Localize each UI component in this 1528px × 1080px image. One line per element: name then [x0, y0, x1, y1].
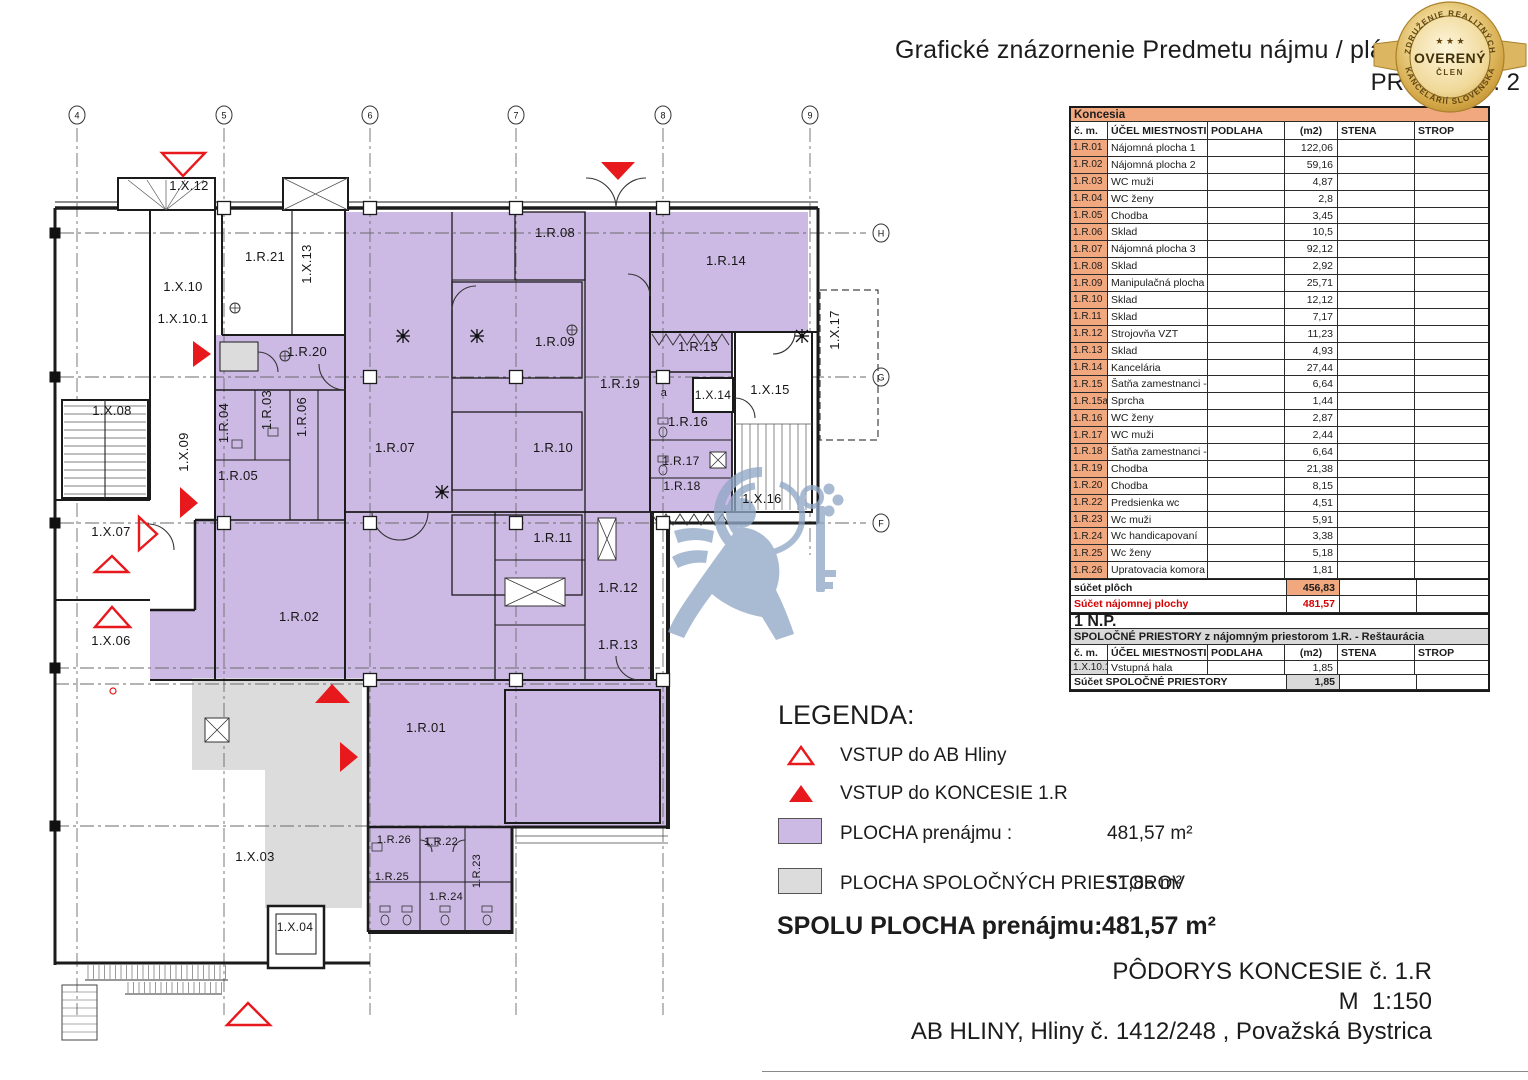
legend-total-label: SPOLU PLOCHA prenájmu: — [777, 912, 1103, 941]
cell: Sprcha — [1108, 393, 1208, 410]
cell — [1415, 393, 1488, 410]
cell — [1338, 512, 1415, 529]
table-row: 1.R.19Chodba21,38 — [1071, 461, 1488, 478]
grid-label: 9 — [807, 111, 812, 121]
cell — [1338, 410, 1415, 427]
cell — [1415, 512, 1488, 529]
cell: 1.R.12 — [1071, 326, 1108, 343]
tenant-area-fill — [368, 680, 668, 827]
cell: Chodba — [1108, 461, 1208, 478]
cell: Chodba — [1108, 208, 1208, 225]
cell: (m2) — [1285, 645, 1338, 661]
cell — [1338, 376, 1415, 393]
table-floor-row: 1 N.P. — [1071, 613, 1488, 629]
legend-item-label: VSTUP do KONCESIE 1.R — [840, 783, 1068, 805]
column-marker — [657, 674, 670, 687]
room-label-1.X.04: 1.X.04 — [277, 920, 314, 934]
cell — [1338, 174, 1415, 191]
cell: PODLAHA — [1208, 122, 1285, 140]
room-label-1.X.16: 1.X.16 — [742, 491, 781, 506]
cell: STENA — [1338, 645, 1415, 661]
cell: 1.R.15 — [1071, 376, 1108, 393]
entrance-triangle-icon — [193, 341, 211, 367]
cell: 21,38 — [1285, 461, 1338, 478]
cell — [1415, 410, 1488, 427]
tenant-area-fill — [345, 212, 650, 512]
room-label-1.R.11: 1.R.11 — [533, 530, 572, 545]
cell: 1.R.18 — [1071, 444, 1108, 461]
room-label-1.R.18: 1.R.18 — [663, 479, 700, 493]
cell — [1415, 140, 1488, 157]
cell — [1208, 444, 1285, 461]
cell — [1208, 562, 1285, 579]
cell — [1415, 545, 1488, 562]
room-label-1.R.15: 1.R.15 — [678, 339, 718, 354]
page-title: Grafické znázornenie Predmetu nájmu / pl… — [895, 36, 1398, 65]
cell: 1.R.13 — [1071, 343, 1108, 360]
cell: 10,5 — [1285, 224, 1338, 241]
room-label-a: a — [661, 387, 668, 399]
cell: 1,81 — [1285, 562, 1338, 579]
cell: (m2) — [1285, 122, 1338, 140]
entrance-triangle-icon — [601, 162, 635, 180]
room-label-1.X.15: 1.X.15 — [750, 382, 789, 397]
legend-item-value: 51,85 m² — [1107, 873, 1182, 895]
cell — [1208, 258, 1285, 275]
table-row: 1.R.23Wc muži5,91 — [1071, 512, 1488, 529]
column-marker — [50, 518, 61, 529]
ceiling-symbol-icon — [435, 485, 449, 499]
room-label-1.X.06: 1.X.06 — [91, 633, 130, 648]
cell — [1338, 661, 1415, 675]
cell: Strojovňa VZT — [1108, 326, 1208, 343]
table-row: 1.R.20Chodba8,15 — [1071, 478, 1488, 495]
cell — [1338, 562, 1415, 579]
cell — [1415, 191, 1488, 208]
table-row: 1.R.06Sklad10,5 — [1071, 224, 1488, 241]
cell — [1338, 292, 1415, 309]
cell — [1338, 461, 1415, 478]
cell: 2,92 — [1285, 258, 1338, 275]
cell — [1338, 309, 1415, 326]
cell — [1338, 343, 1415, 360]
column-marker — [510, 371, 523, 384]
room-label-1.X.13: 1.X.13 — [299, 244, 314, 283]
cell — [1338, 224, 1415, 241]
room-label-1.X.10: 1.X.10 — [163, 279, 202, 294]
room-label-1.R.07: 1.R.07 — [375, 440, 415, 455]
cell — [1415, 208, 1488, 225]
cell — [1415, 661, 1488, 675]
cell — [1208, 275, 1285, 292]
grid-label: 8 — [660, 111, 665, 121]
column-marker — [50, 821, 61, 832]
cell — [1417, 596, 1488, 613]
badge-stars: ★ ★ ★ — [1435, 36, 1464, 46]
column-marker — [50, 372, 61, 383]
grid-label: 6 — [367, 111, 372, 121]
sum-label-cell: súčet plôch — [1071, 580, 1287, 596]
cell: PODLAHA — [1208, 645, 1285, 661]
cell — [1208, 241, 1285, 258]
cell — [1208, 292, 1285, 309]
entrance-triangle-icon — [227, 1003, 270, 1025]
cell — [1338, 208, 1415, 225]
tenant-area-swatch — [778, 818, 822, 844]
column-marker — [657, 371, 670, 384]
entrance-triangle-icon — [162, 153, 205, 176]
area-table: Koncesiač. m.ÚČEL MIESTNOSTIPODLAHA(m2)S… — [1069, 106, 1490, 692]
cell: 6,64 — [1285, 376, 1338, 393]
cell: 1.R.25 — [1071, 545, 1108, 562]
table-header-row: č. m.ÚČEL MIESTNOSTIPODLAHA(m2)STENASTRO… — [1071, 122, 1488, 140]
legend-item-tenant-area: PLOCHA prenájmu : 481,57 m² — [770, 822, 1490, 852]
cell — [1208, 224, 1285, 241]
cell: Wc handicapovaní — [1108, 528, 1208, 545]
cell: Kancelária — [1108, 360, 1208, 377]
table-row: 1.R.24Wc handicapovaní3,38 — [1071, 528, 1488, 545]
cell — [1338, 495, 1415, 512]
cell: 1.R.09 — [1071, 275, 1108, 292]
cell — [1415, 461, 1488, 478]
table-row: 1.R.08Sklad2,92 — [1071, 258, 1488, 275]
entrance-triangle-icon — [95, 556, 128, 572]
cell: Šatňa zamestnanci - M — [1108, 376, 1208, 393]
cell — [1208, 410, 1285, 427]
room-label-1.R.19: 1.R.19 — [600, 376, 640, 391]
table-row: 1.R.17WC muži2,44 — [1071, 427, 1488, 444]
cell — [1208, 427, 1285, 444]
cell — [1415, 495, 1488, 512]
ceiling-symbol-icon — [396, 329, 410, 343]
cell — [1415, 174, 1488, 191]
room-label-1.R.14: 1.R.14 — [706, 253, 746, 268]
cell: 25,71 — [1285, 275, 1338, 292]
cell: 5,18 — [1285, 545, 1338, 562]
room-label-1.X.03: 1.X.03 — [235, 849, 274, 864]
cell: 1.R.16 — [1071, 410, 1108, 427]
drawing-scale: M 1:150 — [900, 987, 1432, 1017]
table-sum-area-row: súčet plôch456,83 — [1071, 579, 1488, 596]
cell — [1338, 478, 1415, 495]
cell — [1415, 241, 1488, 258]
room-label-1.R.24: 1.R.24 — [429, 891, 463, 903]
common-area-swatch — [778, 868, 822, 894]
grid-label: 4 — [74, 111, 79, 121]
column-marker — [510, 202, 523, 215]
cell: Chodba — [1108, 478, 1208, 495]
cell — [1208, 140, 1285, 157]
cell — [1415, 427, 1488, 444]
table-row: 1.R.10Sklad12,12 — [1071, 292, 1488, 309]
grid-label: 7 — [513, 111, 518, 121]
table-sum-rent-row: Súčet nájomnej plochy481,57 — [1071, 596, 1488, 613]
cell — [1338, 140, 1415, 157]
cell: 1.R.07 — [1071, 241, 1108, 258]
cell: 7,17 — [1285, 309, 1338, 326]
cell — [1338, 360, 1415, 377]
cell — [1208, 326, 1285, 343]
table-header-row: č. m.ÚČEL MIESTNOSTIPODLAHA(m2)STENASTRO… — [1071, 645, 1488, 661]
verified-member-badge: ZDRUŽENIE REALITNÝCH KANCELÁRIÍ SLOVENSK… — [1372, 0, 1528, 118]
table-common-sum-row: Súčet SPOLOČNÉ PRIESTORY1,85 — [1071, 675, 1488, 690]
cell — [1338, 191, 1415, 208]
cell — [1208, 174, 1285, 191]
cell: 8,15 — [1285, 478, 1338, 495]
cell — [1415, 258, 1488, 275]
table-row: 1.R.15aSprcha1,44 — [1071, 393, 1488, 410]
room-label-1.X.09: 1.X.09 — [176, 432, 191, 471]
entrance-outline-triangle-icon — [786, 744, 816, 768]
room-label-1.X.17: 1.X.17 — [827, 310, 842, 349]
cell — [1415, 478, 1488, 495]
cell: 4,51 — [1285, 495, 1338, 512]
cell — [1208, 360, 1285, 377]
cell — [1340, 675, 1417, 690]
room-label-1.X.07: 1.X.07 — [91, 524, 130, 539]
cell: WC muži — [1108, 174, 1208, 191]
table-row: 1.R.14Kancelária27,44 — [1071, 360, 1488, 377]
room-label-1.R.09: 1.R.09 — [535, 334, 575, 349]
entrance-triangle-icon — [95, 607, 130, 627]
entrance-triangle-icon — [139, 517, 157, 550]
cell: 2,87 — [1285, 410, 1338, 427]
room-outline — [220, 342, 258, 371]
sum-label-cell: Súčet nájomnej plochy — [1071, 596, 1287, 613]
cell — [1208, 393, 1285, 410]
room-label-1.R.01: 1.R.01 — [406, 720, 446, 735]
cell: STROP — [1415, 645, 1488, 661]
room-label-1.R.12: 1.R.12 — [598, 580, 638, 595]
cell — [1208, 309, 1285, 326]
column-marker — [364, 674, 377, 687]
cell: 5,91 — [1285, 512, 1338, 529]
cell: STROP — [1415, 122, 1488, 140]
cell: Nájomná plocha 2 — [1108, 157, 1208, 174]
cell: WC ženy — [1108, 410, 1208, 427]
badge-label: OVERENÝ — [1414, 49, 1486, 66]
cell: Predsienka wc — [1108, 495, 1208, 512]
room-label-1.R.03: 1.R.03 — [259, 390, 274, 430]
table-row: 1.R.05Chodba3,45 — [1071, 208, 1488, 225]
room-label-1.R.26: 1.R.26 — [377, 834, 411, 846]
table-common-section-title: SPOLOČNÉ PRIESTORY z nájomným priestorom… — [1071, 629, 1488, 645]
cell: 1.R.26 — [1071, 562, 1108, 579]
room-label-1.X.08: 1.X.08 — [92, 403, 131, 418]
cell — [1417, 580, 1488, 596]
cell: 1.R.03 — [1071, 174, 1108, 191]
cell — [1208, 343, 1285, 360]
cell — [1415, 343, 1488, 360]
cell: 1.R.23 — [1071, 512, 1108, 529]
column-marker — [657, 517, 670, 530]
cell: 27,44 — [1285, 360, 1338, 377]
cell: 1.R.11 — [1071, 309, 1108, 326]
legend-item-label: VSTUP do AB Hliny — [840, 745, 1007, 767]
cell — [1415, 309, 1488, 326]
drawing-title-block: PÔDORYS KONCESIE č. 1.R M 1:150 AB HLINY… — [900, 957, 1432, 1047]
cell: Sklad — [1108, 292, 1208, 309]
cell: 6,64 — [1285, 444, 1338, 461]
cell: 1.R.24 — [1071, 528, 1108, 545]
cell: 1.R.20 — [1071, 478, 1108, 495]
column-marker — [657, 202, 670, 215]
door-swing-arc — [586, 178, 616, 208]
room-label-1.X.12: 1.X.12 — [169, 178, 208, 193]
page: 456789HGF 1.X.121.R.211.X.131.X.101.X.10… — [0, 0, 1528, 1080]
cell — [1338, 241, 1415, 258]
cell: 1.R.10 — [1071, 292, 1108, 309]
drawing-address: AB HLINY, Hliny č. 1412/248 , Považská B… — [900, 1017, 1432, 1047]
cell — [1415, 444, 1488, 461]
cell: 1,85 — [1285, 661, 1338, 675]
cell: 4,87 — [1285, 174, 1338, 191]
table-row: 1.R.15Šatňa zamestnanci - M6,64 — [1071, 376, 1488, 393]
tenant-area-fill — [150, 512, 650, 680]
cell: č. m. — [1071, 122, 1108, 140]
legend-item-common-area: PLOCHA SPOLOČNÝCH PRIESTOROV 51,85 m² — [770, 872, 1490, 902]
cell — [1208, 545, 1285, 562]
section-cell: 1 N.P. — [1071, 613, 1488, 629]
column-marker — [218, 202, 231, 215]
cell: č. m. — [1071, 645, 1108, 661]
legend-total-value: 481,57 m² — [1102, 912, 1216, 941]
cell: Wc ženy — [1108, 545, 1208, 562]
cell: 456,83 — [1287, 580, 1340, 596]
column-marker — [218, 517, 231, 530]
cell — [1338, 528, 1415, 545]
column-marker — [364, 202, 377, 215]
cell — [1338, 393, 1415, 410]
cell — [1415, 275, 1488, 292]
cell: 1.R.19 — [1071, 461, 1108, 478]
cell: 3,38 — [1285, 528, 1338, 545]
table-row: 1.R.13Sklad4,93 — [1071, 343, 1488, 360]
room-label-1.R.13: 1.R.13 — [598, 637, 638, 652]
cell — [1208, 661, 1285, 675]
table-row: 1.R.18Šatňa zamestnanci - M6,64 — [1071, 444, 1488, 461]
column-marker — [510, 517, 523, 530]
ceiling-symbol-icon — [470, 329, 484, 343]
cell: 1.R.05 — [1071, 208, 1108, 225]
table-row: 1.R.04WC ženy2,8 — [1071, 191, 1488, 208]
grid-label: H — [878, 229, 885, 239]
cell: Šatňa zamestnanci - M — [1108, 444, 1208, 461]
table-row: 1.R.03WC muži4,87 — [1071, 174, 1488, 191]
room-label-1.R.08: 1.R.08 — [535, 225, 575, 240]
table-row: 1.R.11Sklad7,17 — [1071, 309, 1488, 326]
red-dot-marker — [110, 688, 116, 694]
cell: Sklad — [1108, 309, 1208, 326]
cell — [1208, 208, 1285, 225]
drawing-title: PÔDORYS KONCESIE č. 1.R — [900, 957, 1432, 987]
cell: 122,06 — [1285, 140, 1338, 157]
cell — [1208, 512, 1285, 529]
cell — [1417, 675, 1488, 690]
room-label-1.X.10.1: 1.X.10.1 — [158, 311, 209, 326]
cell — [1208, 157, 1285, 174]
cell — [1208, 478, 1285, 495]
cell: 1.R.17 — [1071, 427, 1108, 444]
cell — [1415, 224, 1488, 241]
cell — [1340, 596, 1417, 613]
cell: 1.R.01 — [1071, 140, 1108, 157]
cell: Wc muži — [1108, 512, 1208, 529]
grid-label: 5 — [221, 111, 226, 121]
cell: STENA — [1338, 122, 1415, 140]
room-label-1.R.25: 1.R.25 — [375, 871, 409, 883]
cell: WC ženy — [1108, 191, 1208, 208]
column-marker — [364, 517, 377, 530]
cell — [1415, 157, 1488, 174]
room-label-1.R.23: 1.R.23 — [471, 854, 483, 888]
cell — [1338, 157, 1415, 174]
grid-label: F — [878, 519, 884, 529]
cell: Sklad — [1108, 224, 1208, 241]
table-row: 1.R.12Strojovňa VZT11,23 — [1071, 326, 1488, 343]
cell — [1338, 326, 1415, 343]
sum-label-cell: Súčet SPOLOČNÉ PRIESTORY — [1071, 675, 1287, 690]
cell: Nájomná plocha 1 — [1108, 140, 1208, 157]
room-label-1.R.17: 1.R.17 — [662, 454, 699, 468]
room-label-1.R.06: 1.R.06 — [294, 397, 309, 437]
cell: 59,16 — [1285, 157, 1338, 174]
room-label-1.R.02: 1.R.02 — [279, 609, 319, 624]
cell — [1338, 275, 1415, 292]
table-row: 1.R.16WC ženy2,87 — [1071, 410, 1488, 427]
cell: Nájomná plocha 3 — [1108, 241, 1208, 258]
legend: LEGENDA: VSTUP do AB Hliny VSTUP do KONC… — [770, 700, 1490, 950]
cell — [1338, 545, 1415, 562]
cell — [1208, 528, 1285, 545]
cell: 1.R.15a — [1071, 393, 1108, 410]
cell: Manipulačná plocha — [1108, 275, 1208, 292]
table-row: 1.X.10.1Vstupná hala1,85 — [1071, 661, 1488, 675]
table-row: 1.R.25Wc ženy5,18 — [1071, 545, 1488, 562]
table-row: 1.R.09Manipulačná plocha25,71 — [1071, 275, 1488, 292]
cell: 1.R.14 — [1071, 360, 1108, 377]
bottom-divider — [762, 1071, 1528, 1072]
cell: 92,12 — [1285, 241, 1338, 258]
cell — [1208, 191, 1285, 208]
cell — [1415, 562, 1488, 579]
cell — [1415, 292, 1488, 309]
cell: ÚČEL MIESTNOSTI — [1108, 122, 1208, 140]
cell: 2,44 — [1285, 427, 1338, 444]
badge-sublabel: ČLEN — [1436, 68, 1464, 77]
legend-item-entrance-ab: VSTUP do AB Hliny — [770, 744, 1490, 774]
cell: 1.R.02 — [1071, 157, 1108, 174]
common-area-fill — [192, 678, 362, 908]
legend-title: LEGENDA: — [778, 700, 915, 731]
column-marker — [364, 371, 377, 384]
cell — [1340, 580, 1417, 596]
cell: Sklad — [1108, 258, 1208, 275]
ceiling-symbol-icon — [795, 329, 809, 343]
table-row: 1.R.02Nájomná plocha 259,16 — [1071, 157, 1488, 174]
cell — [1338, 427, 1415, 444]
cell — [1208, 461, 1285, 478]
section-cell: SPOLOČNÉ PRIESTORY z nájomným priestorom… — [1071, 629, 1488, 645]
legend-item-label: PLOCHA prenájmu : — [840, 823, 1012, 845]
room-label-1.X.14: 1.X.14 — [695, 388, 732, 402]
cell: 1,85 — [1287, 675, 1340, 690]
entrance-filled-triangle-icon — [786, 782, 816, 806]
cell: 3,45 — [1285, 208, 1338, 225]
cell — [1415, 376, 1488, 393]
cell: ÚČEL MIESTNOSTI — [1108, 645, 1208, 661]
cell: 11,23 — [1285, 326, 1338, 343]
